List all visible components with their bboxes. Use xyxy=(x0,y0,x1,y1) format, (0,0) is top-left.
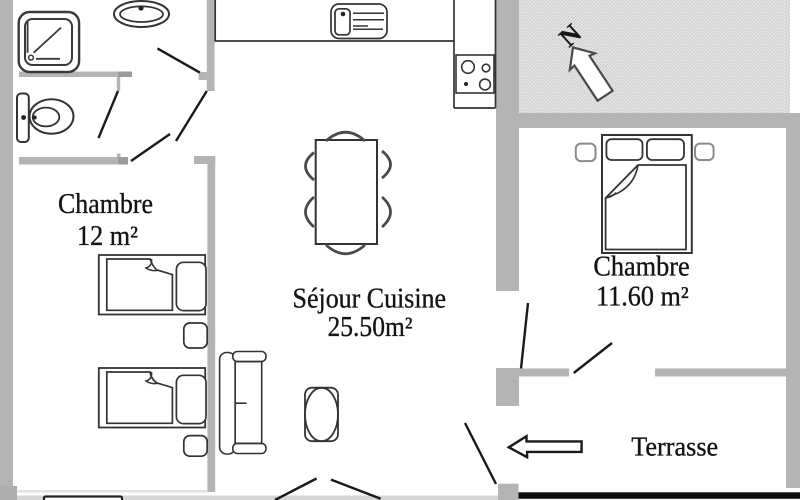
svg-text:Séjour Cuisine: Séjour Cuisine xyxy=(293,284,447,315)
svg-text:11.60 m²: 11.60 m² xyxy=(596,281,689,312)
svg-text:Terrasse: Terrasse xyxy=(631,432,718,462)
svg-text:12 m²: 12 m² xyxy=(77,221,138,252)
svg-text:25.50m²: 25.50m² xyxy=(328,312,413,343)
svg-text:Chambre: Chambre xyxy=(58,189,153,220)
svg-text:Chambre: Chambre xyxy=(593,252,689,283)
